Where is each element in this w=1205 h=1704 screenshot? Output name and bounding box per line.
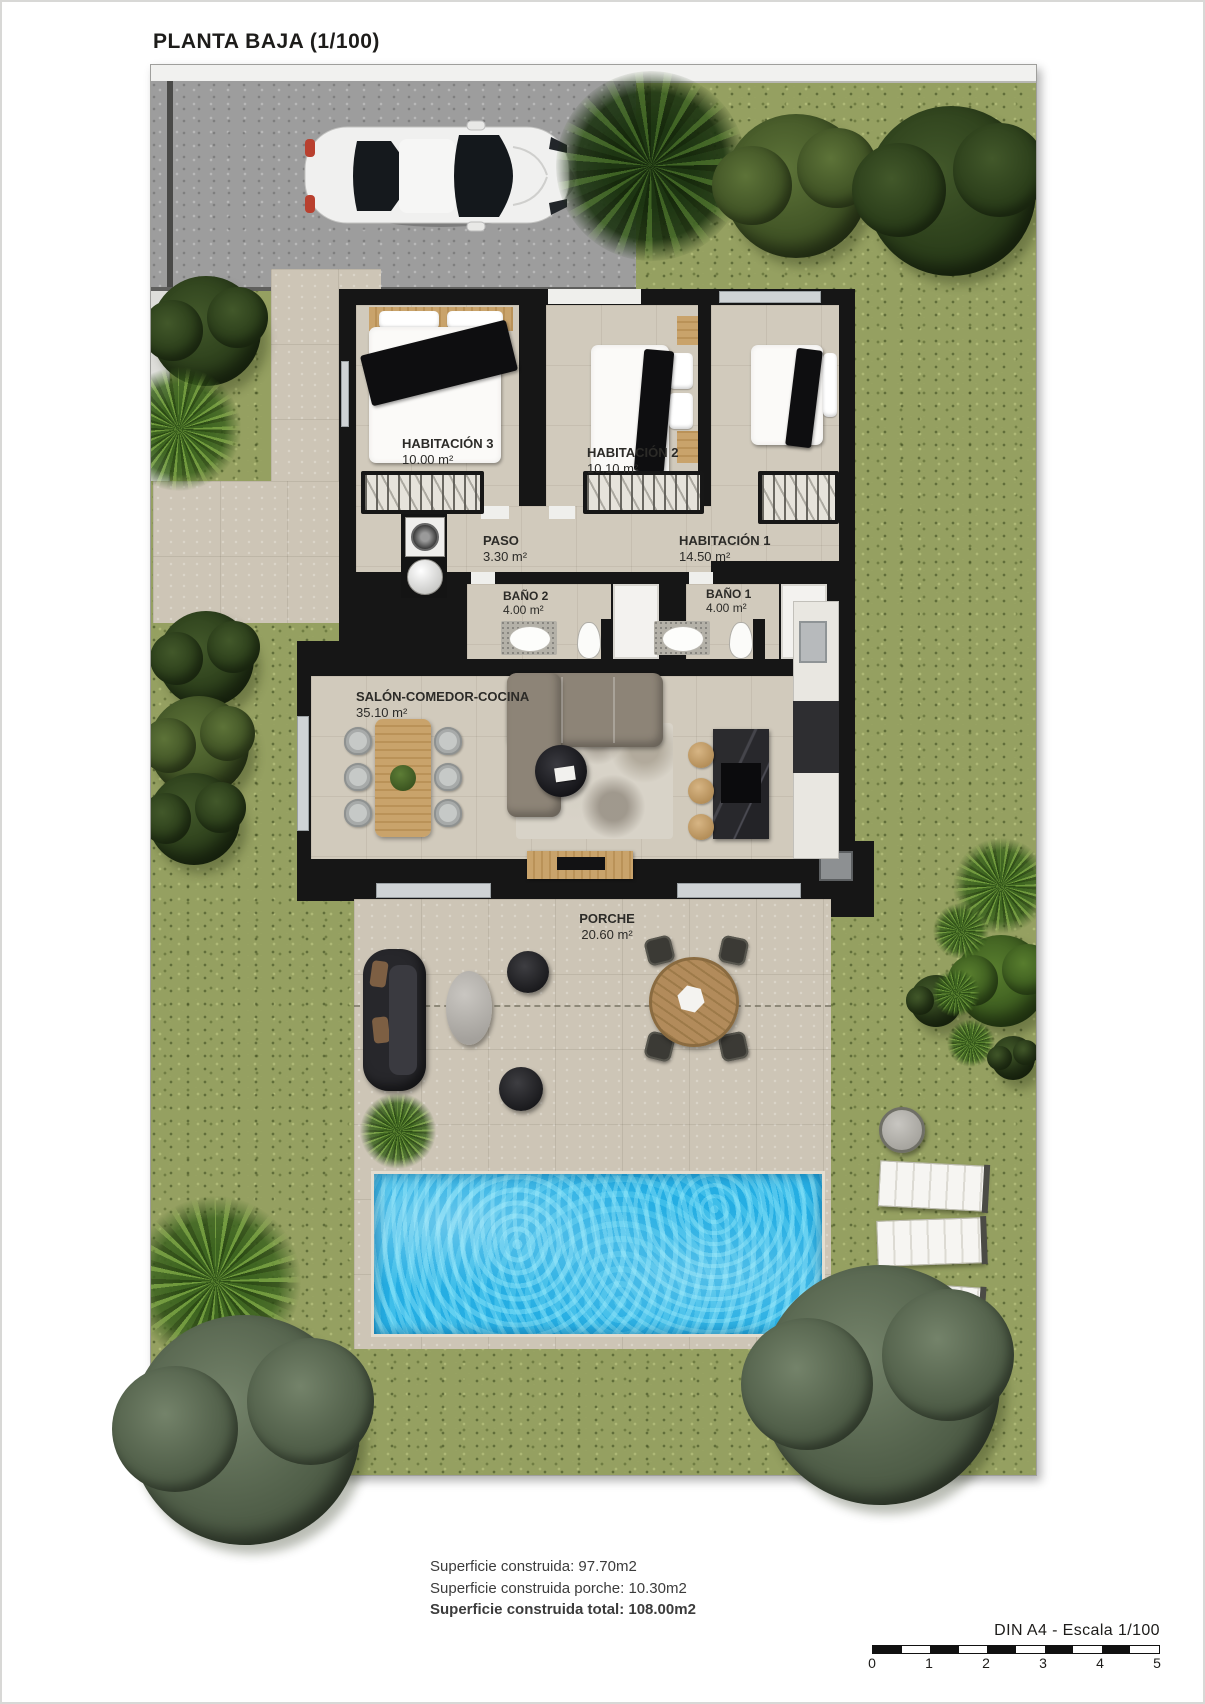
scale-label: DIN A4 - Escala 1/100: [994, 1622, 1160, 1640]
grass-plant-icon: [932, 969, 980, 1017]
bush-icon: [866, 106, 1036, 276]
label-bano2: BAÑO 2 4.00 m²: [503, 589, 548, 617]
shrub-icon: [991, 1036, 1035, 1080]
tv: [557, 857, 605, 870]
room-name: PORCHE: [579, 911, 635, 927]
room-name: SALÓN-COMEDOR-COCINA: [356, 689, 529, 705]
sink-bano2: [509, 626, 551, 652]
washing-machine: [405, 517, 445, 557]
scale-bar: [872, 1645, 1160, 1654]
sliding-door-right: [677, 883, 801, 898]
label-porche: PORCHE 20.60 m²: [557, 911, 657, 943]
window-hab3-west: [341, 361, 349, 427]
room-name: HABITACIÓN 3: [402, 436, 493, 452]
garden-round-table: [879, 1107, 925, 1153]
pillow: [823, 353, 837, 417]
swimming-pool: [371, 1171, 825, 1337]
room-area: 10.00 m²: [402, 452, 493, 468]
scale-tick: 1: [919, 1655, 939, 1671]
room-area: 4.00 m²: [503, 603, 548, 617]
water-heater: [407, 559, 443, 595]
table-plant: [390, 765, 416, 791]
wardrobe-hab3: [361, 471, 484, 514]
coffee-table-book: [554, 766, 576, 783]
scale-tick: 2: [976, 1655, 996, 1671]
label-hab1: HABITACIÓN 1 14.50 m²: [679, 533, 770, 565]
label-bano1: BAÑO 1 4.00 m²: [706, 587, 751, 615]
kitchen-appliance-column: [793, 701, 839, 773]
pouf: [507, 951, 549, 993]
dining-chair: [344, 799, 372, 827]
scale-tick: 5: [1147, 1655, 1167, 1671]
room-area: 4.00 m²: [706, 601, 751, 615]
toilet-bano2: [577, 622, 601, 659]
plan-title: PLANTA BAJA (1/100): [153, 30, 380, 54]
door-hab3: [481, 506, 509, 519]
bench-hab2-top: [677, 316, 698, 345]
room-area: 3.30 m²: [483, 549, 527, 565]
scale-tick: 3: [1033, 1655, 1053, 1671]
pouf: [499, 1067, 543, 1111]
stool: [688, 742, 714, 768]
dining-chair: [434, 727, 462, 755]
room-area: 14.50 m²: [679, 549, 770, 565]
door-bano2: [471, 572, 495, 584]
scale-tick: 0: [862, 1655, 882, 1671]
pillow: [669, 393, 693, 429]
label-hab3: HABITACIÓN 3 10.00 m²: [402, 436, 493, 468]
dining-chair: [434, 763, 462, 791]
palm-bush-icon: [150, 367, 241, 491]
tree-icon: [724, 114, 868, 258]
wardrobe-hab2: [583, 471, 704, 514]
large-tree-icon: [130, 1315, 360, 1545]
car-top-view: [299, 117, 579, 235]
outdoor-sofa-seat: [389, 965, 417, 1075]
door-hab2: [549, 506, 575, 519]
room-name: BAÑO 1: [706, 587, 751, 601]
entry-step: [548, 289, 641, 304]
window-hab1-north: [719, 291, 821, 303]
surface-summary: Superficie construida: 97.70m2 Superfici…: [430, 1556, 696, 1621]
kitchen-sink: [799, 621, 827, 663]
label-salon: SALÓN-COMEDOR-COCINA 35.10 m²: [356, 689, 529, 721]
window-salon-west: [297, 716, 309, 831]
room-name: PASO: [483, 533, 527, 549]
sun-lounger: [876, 1217, 984, 1267]
outdoor-sofa-cushion: [372, 1016, 391, 1044]
room-area: 20.60 m²: [581, 927, 632, 943]
tree-icon: [150, 773, 240, 865]
room-name: HABITACIÓN 1: [679, 533, 770, 549]
room-area: 10.10 m²: [587, 461, 678, 477]
sofa-seam: [561, 677, 563, 743]
stool: [688, 778, 714, 804]
partition-bano1: [753, 619, 765, 659]
sun-lounger: [878, 1160, 986, 1211]
room-area: 35.10 m²: [356, 705, 529, 721]
summary-line: Superficie construida: 97.70m2: [430, 1556, 696, 1578]
room-name: HABITACIÓN 2: [587, 445, 678, 461]
bush-icon: [360, 1093, 436, 1169]
sliding-door-left: [376, 883, 491, 898]
dining-chair: [344, 763, 372, 791]
dining-chair: [344, 727, 372, 755]
shower-bano2: [613, 584, 659, 659]
scale-tick: 4: [1090, 1655, 1110, 1671]
bench-hab2-bottom: [677, 431, 698, 463]
room-name: BAÑO 2: [503, 589, 548, 603]
stool: [688, 814, 714, 840]
toilet-bano1: [729, 622, 753, 659]
grass-plant-icon: [933, 903, 989, 959]
tree-icon: [158, 611, 254, 707]
side-table: [446, 971, 492, 1045]
site-plan: HABITACIÓN 3 10.00 m² HABITACIÓN 2 10.10…: [150, 64, 1037, 1476]
sofa-seam: [613, 677, 615, 743]
partition-bano2: [601, 619, 613, 659]
summary-line: Superficie construida porche: 10.30m2: [430, 1578, 696, 1600]
label-hab2: HABITACIÓN 2 10.10 m²: [587, 445, 678, 477]
cooktop: [721, 763, 761, 803]
driveway-edge-left: [167, 81, 173, 291]
door-bano1: [689, 572, 713, 584]
large-tree-icon: [760, 1265, 1000, 1505]
wardrobe-hab1: [758, 471, 839, 524]
sink-bano1: [662, 626, 704, 652]
label-paso: PASO 3.30 m²: [483, 533, 527, 565]
summary-line-total: Superficie construida total: 108.00m2: [430, 1599, 696, 1621]
dining-chair: [434, 799, 462, 827]
